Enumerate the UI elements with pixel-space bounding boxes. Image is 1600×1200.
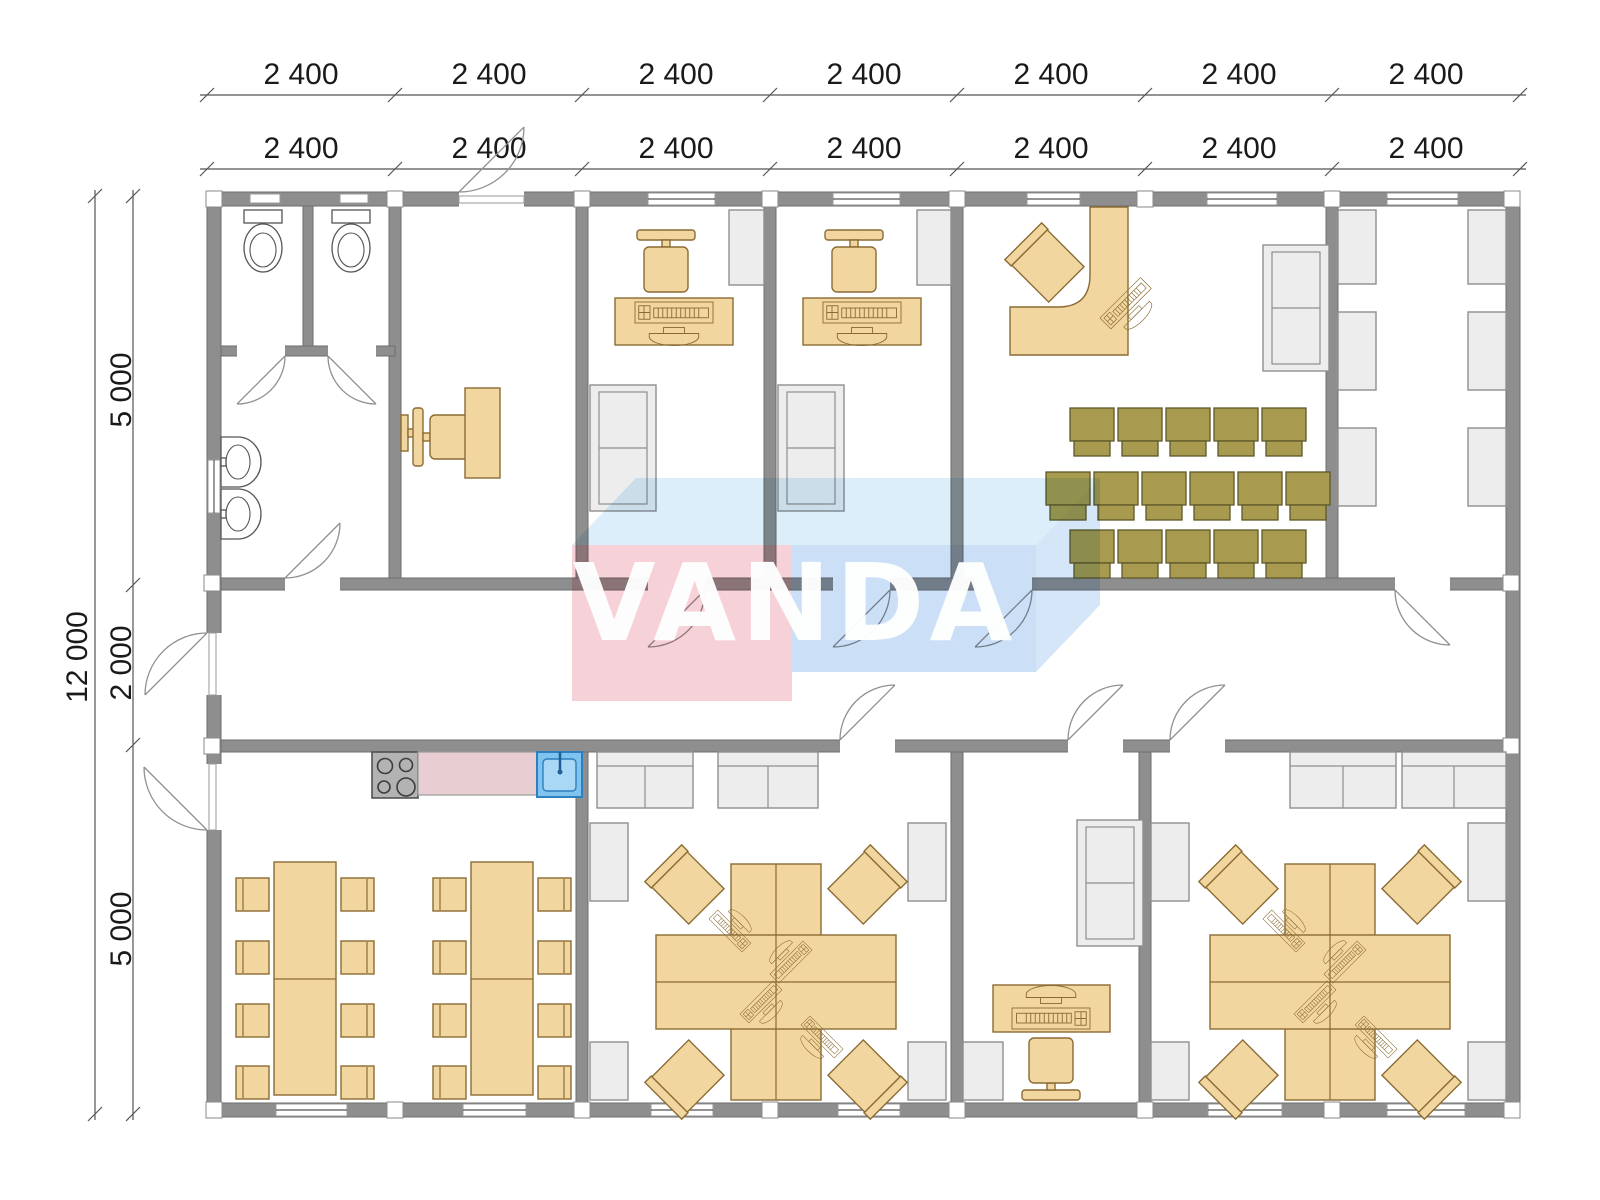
chair xyxy=(433,1004,466,1037)
chair xyxy=(341,878,374,911)
dim-label: 2 400 xyxy=(263,58,338,91)
vent-window xyxy=(250,194,280,203)
cabinet xyxy=(917,210,951,285)
chair xyxy=(538,941,571,974)
dining-table xyxy=(274,862,336,1095)
dim-label: 2 400 xyxy=(451,58,526,91)
chair xyxy=(1214,408,1258,456)
cabinet xyxy=(1468,210,1506,284)
cabinet xyxy=(1338,428,1376,506)
desk xyxy=(465,388,500,478)
sink-basin xyxy=(221,437,261,487)
cabinet xyxy=(590,823,628,901)
toilet xyxy=(244,210,282,272)
cabinet xyxy=(729,210,764,285)
chair xyxy=(433,1066,466,1099)
sofa xyxy=(1263,245,1329,371)
cabinet xyxy=(590,1042,628,1100)
chair xyxy=(433,941,466,974)
desk xyxy=(993,985,1110,1032)
window xyxy=(1387,193,1458,205)
chair xyxy=(1190,472,1234,520)
dim-label: 2 400 xyxy=(826,132,901,165)
chair xyxy=(637,230,695,292)
counter xyxy=(597,752,693,808)
window xyxy=(463,1104,526,1116)
wall-panel xyxy=(401,415,408,451)
door-corridor-west xyxy=(145,633,222,695)
wall-right xyxy=(1506,192,1520,1117)
dim-label: 5 000 xyxy=(105,891,138,966)
kitchen-sink xyxy=(537,752,582,797)
cabinet xyxy=(1468,1042,1506,1100)
window xyxy=(208,460,220,513)
chair xyxy=(1118,530,1162,578)
dim-label: 2 400 xyxy=(638,58,713,91)
chair xyxy=(1166,408,1210,456)
chair-row-3 xyxy=(1070,530,1306,578)
watermark-text: VANDA xyxy=(573,542,1018,666)
chair xyxy=(538,1066,571,1099)
counter xyxy=(718,752,818,808)
chair xyxy=(1238,472,1282,520)
cabinet xyxy=(908,1042,946,1100)
dim-label: 2 400 xyxy=(1388,132,1463,165)
dining-table xyxy=(471,862,533,1095)
chair xyxy=(1118,408,1162,456)
counter xyxy=(1402,752,1506,808)
chair xyxy=(1262,530,1306,578)
chair xyxy=(236,1004,269,1037)
window xyxy=(1207,193,1277,205)
dim-label-total: 12 000 xyxy=(61,611,94,703)
dim-label: 2 400 xyxy=(1013,58,1088,91)
chair-row-1 xyxy=(1070,408,1306,456)
floor-plan: 2 400 2 400 2 400 2 400 2 400 2 400 2 40… xyxy=(0,0,1600,1200)
chair xyxy=(341,1066,374,1099)
dim-label: 2 400 xyxy=(638,132,713,165)
sink-basin xyxy=(221,489,261,539)
cabinet xyxy=(1468,823,1506,901)
dim-label: 2 400 xyxy=(826,58,901,91)
cabinet xyxy=(1151,1042,1189,1100)
cabinet xyxy=(963,1042,1003,1100)
toilet xyxy=(332,210,370,272)
chair xyxy=(433,878,466,911)
kitchen-counter xyxy=(418,752,537,795)
chair xyxy=(1094,472,1138,520)
dim-label: 2 400 xyxy=(1388,58,1463,91)
chair xyxy=(236,941,269,974)
dim-label: 5 000 xyxy=(105,352,138,427)
chair xyxy=(538,878,571,911)
vent-window xyxy=(340,194,368,203)
chair xyxy=(236,1066,269,1099)
chair xyxy=(825,230,883,292)
cabinet xyxy=(1338,210,1376,284)
chair xyxy=(236,878,269,911)
dim-label: 2 400 xyxy=(1201,58,1276,91)
window xyxy=(648,193,715,205)
counter xyxy=(1290,752,1396,808)
chair xyxy=(1214,530,1258,578)
chair xyxy=(538,1004,571,1037)
cabinet xyxy=(1468,312,1506,390)
chair xyxy=(1166,530,1210,578)
chair xyxy=(1286,472,1330,520)
dim-label: 2 400 xyxy=(263,132,338,165)
dim-label: 2 000 xyxy=(105,625,138,700)
chair xyxy=(1262,408,1306,456)
watermark: VANDA xyxy=(572,478,1100,701)
desk xyxy=(803,298,921,345)
chair xyxy=(1142,472,1186,520)
chair xyxy=(1022,1038,1080,1100)
cabinet xyxy=(1468,428,1506,506)
cabinet xyxy=(1151,823,1189,901)
chair xyxy=(1070,408,1114,456)
door-canteen-west xyxy=(144,764,222,830)
cabinet xyxy=(908,823,946,901)
dim-label: 2 400 xyxy=(1013,132,1088,165)
chair xyxy=(341,1004,374,1037)
window xyxy=(1027,193,1080,205)
cabinet xyxy=(1338,312,1376,390)
window xyxy=(833,193,900,205)
dim-label: 2 400 xyxy=(1201,132,1276,165)
window xyxy=(276,1104,347,1116)
chair xyxy=(341,941,374,974)
sofa xyxy=(1077,820,1143,946)
desk xyxy=(615,298,733,345)
